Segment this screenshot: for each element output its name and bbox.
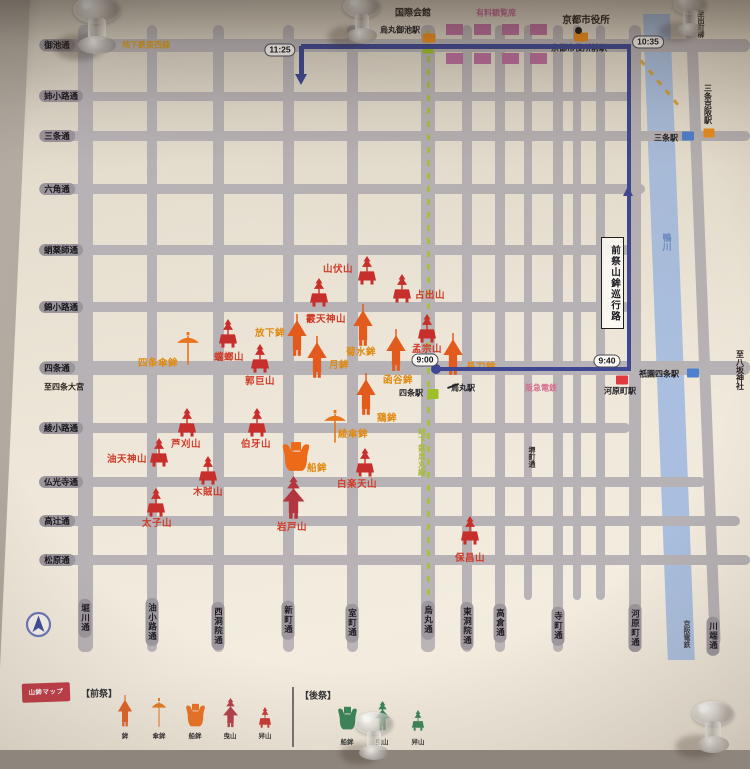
north-compass-icon — [25, 611, 52, 638]
float-label: 綾傘鉾 — [338, 426, 368, 440]
street-v-堀川通 — [78, 25, 93, 652]
station-label-祇園四条駅: 祇園四条駅 — [639, 369, 679, 380]
float-label: 芦刈山 — [171, 436, 201, 450]
viewing-stand-block — [474, 53, 491, 64]
station-marker — [682, 132, 694, 141]
float-label: 船鉾 — [307, 460, 327, 474]
street-label-新町通: 新町通 — [282, 601, 295, 640]
street-label-川端通: 川端通 — [707, 617, 720, 656]
street-h-1 — [40, 92, 640, 101]
route-direction-arrowhead — [623, 186, 633, 196]
legend-icon-funeboko — [337, 706, 358, 731]
station-label-河原町駅: 河原町駅 — [604, 386, 636, 397]
legend-icon-kasaboko — [151, 698, 167, 728]
legend-icon-hikiyama — [374, 701, 391, 731]
street-label-堀川通: 堀川通 — [79, 599, 92, 638]
float-label: 油天神山 — [107, 451, 147, 465]
float-label: 保昌山 — [455, 550, 485, 564]
viewing-stand-block — [474, 24, 491, 35]
street-label-烏丸通: 烏丸通 — [422, 601, 435, 640]
legend-item-label: 傘鉾 — [153, 730, 166, 740]
street-label-河原町通: 河原町通 — [629, 604, 642, 652]
float-icon-kakiyama — [353, 448, 377, 477]
float-icon-kakiyama — [355, 256, 379, 285]
legend-saki-header: 【前祭】 — [81, 687, 117, 700]
float-icon-kakiyama — [415, 314, 439, 343]
station-label-三条駅: 三条駅 — [654, 133, 678, 144]
float-icon-kakiyama — [390, 274, 414, 303]
legend-icon-kakiyama — [257, 707, 273, 728]
landmark-label: 地下鉄烏丸線 — [417, 428, 428, 476]
station-label-三条京阪駅: 三条京阪駅 — [703, 84, 714, 124]
route-time-badge: 9:00 — [411, 354, 438, 367]
street-v-高倉通 — [495, 25, 505, 652]
legend-item-label: 鉾 — [122, 730, 129, 740]
float-icon-hoko — [306, 336, 328, 380]
legend-title-box: 山鉾マップ — [22, 682, 71, 703]
street-label-錦小路通: 錦小路通 — [39, 301, 83, 313]
street-label-仏光寺通: 仏光寺通 — [39, 476, 83, 488]
street-label-西洞院通: 西洞院通 — [212, 602, 225, 650]
street-label-六角通: 六角通 — [39, 183, 75, 195]
float-label: 木賊山 — [193, 484, 223, 498]
float-icon-hoko — [286, 314, 308, 358]
route-kawaramachi-segment — [627, 44, 632, 369]
float-label: 蟷螂山 — [214, 349, 244, 363]
legend-divider — [292, 687, 294, 747]
station-marker — [704, 129, 715, 138]
station-marker — [423, 34, 436, 43]
viewing-stand-block — [446, 53, 463, 64]
map-poster-paper: 前祭山鉾巡行路 山鉾マップ 【前祭】 【後祭】 鴨川京阪電鉄御池通姉小路通三条通… — [0, 0, 750, 750]
float-icon-kakiyama — [245, 408, 269, 437]
station-label-烏丸御池駅: 烏丸御池駅 — [380, 25, 420, 36]
street-v-堺町通 — [524, 25, 532, 600]
float-label: 太子山 — [142, 515, 172, 529]
station-label-四条駅: 四条駅 — [399, 388, 423, 399]
street-label-四条通: 四条通 — [39, 362, 75, 374]
viewing-stand-block — [502, 24, 519, 35]
float-icon-hoko — [352, 304, 374, 348]
keihan-railway-label: 京阪電鉄 — [681, 620, 691, 648]
street-label-高辻通: 高辻通 — [39, 515, 75, 527]
street-h-4 — [40, 245, 630, 255]
legend-item-label: 舁山 — [412, 736, 425, 746]
float-icon-kasaboko — [176, 332, 200, 366]
station-label-烏丸駅: 烏丸駅 — [451, 383, 475, 394]
float-icon-kakiyama — [144, 488, 168, 517]
viewing-stand-block — [502, 53, 519, 64]
route-time-badge: 9:40 — [593, 355, 620, 368]
float-label: 放下鉾 — [255, 325, 285, 339]
legend-item-label: 船鉾 — [189, 730, 202, 740]
viewing-stand-block — [530, 53, 547, 64]
float-icon-kakiyama — [458, 516, 482, 545]
street-label-油小路通: 油小路通 — [146, 598, 159, 646]
street-label-松原通: 松原通 — [39, 554, 75, 566]
route-time-badge: 11:25 — [264, 44, 295, 57]
route-oike-segment — [301, 44, 631, 49]
street-v-寺町通 — [553, 25, 563, 652]
landmark-label: 至出町柳 — [695, 10, 705, 38]
landmark-label: 阪急電鉄 — [525, 383, 557, 394]
float-label: 白楽天山 — [337, 476, 377, 490]
street-label-堺町通: 堺町通 — [526, 447, 536, 468]
legend-ato-header: 【後祭】 — [300, 689, 336, 702]
float-label: 占出山 — [415, 287, 445, 301]
legend-icon-kakiyama — [410, 710, 426, 731]
photo-of-map-poster: 前祭山鉾巡行路 山鉾マップ 【前祭】 【後祭】 鴨川京阪電鉄御池通姉小路通三条通… — [0, 0, 750, 750]
float-label: 伯牙山 — [241, 436, 271, 450]
station-marker — [428, 389, 439, 399]
float-icon-kakiyama — [147, 438, 171, 467]
street-label-姉小路通: 姉小路通 — [39, 90, 83, 102]
station-marker — [616, 376, 628, 385]
float-icon-kakiyama — [248, 344, 272, 373]
landmark-label: 有料観覧席 — [476, 8, 516, 19]
float-label: 岩戸山 — [277, 519, 307, 533]
float-icon-kakiyama — [216, 319, 240, 348]
float-icon-hikiyama — [281, 476, 306, 520]
landmark-label: 京都市役所 — [562, 12, 610, 26]
landmark-label: 国際会館 — [395, 6, 431, 19]
street-v-minor-12 — [573, 25, 581, 600]
float-icon-kakiyama — [196, 456, 220, 485]
float-label: 鶏鉾 — [377, 410, 397, 424]
float-label: 郭巨山 — [245, 373, 275, 387]
station-marker — [687, 369, 699, 378]
kamo-river-label: 鴨川 — [661, 233, 674, 251]
legend-item-label: 曳山 — [224, 730, 237, 740]
landmark-label: 地下鉄東西線 — [122, 40, 170, 51]
float-icon-hoko — [355, 373, 377, 417]
procession-route-sign: 前祭山鉾巡行路 — [601, 237, 624, 329]
street-label-高倉通: 高倉通 — [494, 604, 507, 643]
legend-icon-funeboko — [185, 703, 206, 728]
legend-icon-hoko — [117, 695, 133, 728]
float-icon-kakiyama — [307, 278, 331, 307]
legend-item-label: 船鉾 — [341, 736, 354, 746]
street-label-綾小路通: 綾小路通 — [39, 422, 83, 434]
legend-icon-hikiyama — [222, 698, 239, 728]
route-time-badge: 10:35 — [632, 36, 664, 49]
city-hall-dot — [575, 27, 582, 34]
route-end-arrowhead — [295, 74, 307, 85]
float-icon-kakiyama — [175, 408, 199, 437]
street-label-東洞院通: 東洞院通 — [461, 602, 474, 650]
street-label-寺町通: 寺町通 — [552, 607, 565, 646]
street-label-三条通: 三条通 — [39, 130, 75, 142]
float-label: 山伏山 — [323, 261, 353, 275]
street-label-室町通: 室町通 — [346, 604, 359, 643]
street-label-御池通: 御池通 — [39, 39, 75, 51]
street-label-蛸薬師通: 蛸薬師通 — [39, 244, 83, 256]
float-label: 四条傘鉾 — [138, 355, 178, 369]
station-marker — [574, 33, 588, 42]
landmark-label: 至四条大宮 — [44, 382, 84, 393]
legend-item-label: 舁山 — [259, 730, 272, 740]
legend-item-label: 曳山 — [376, 736, 389, 746]
float-label: 菊水鉾 — [346, 344, 376, 358]
route-end-stub — [299, 46, 304, 76]
float-label: 函谷鉾 — [383, 372, 413, 386]
float-icon-hoko — [385, 329, 407, 373]
landmark-label: 至八坂神社 — [735, 350, 746, 390]
float-label: 霰天神山 — [306, 311, 346, 325]
viewing-stand-block — [530, 24, 547, 35]
viewing-stand-block — [446, 24, 463, 35]
float-label: 月鉾 — [329, 357, 349, 371]
street-v-油小路通 — [147, 25, 157, 652]
